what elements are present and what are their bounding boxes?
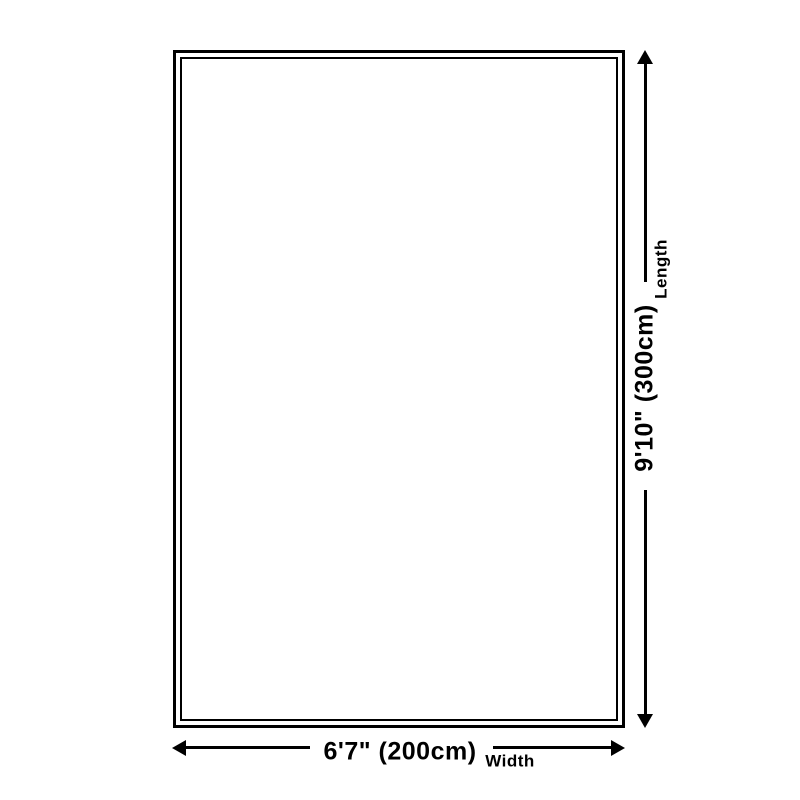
length-value: 9'10" (300cm)	[633, 304, 658, 471]
length-arrow-line-lower	[644, 490, 647, 716]
arrow-right-icon	[611, 740, 625, 756]
length-label: Length	[653, 239, 670, 299]
width-value: 6'7" (200cm)	[323, 740, 476, 765]
width-arrow-line-right	[493, 746, 612, 749]
arrow-down-icon	[637, 714, 653, 728]
length-arrow-line-upper	[644, 62, 647, 282]
width-arrow-line-left	[184, 746, 310, 749]
width-label: Width	[485, 753, 535, 770]
rug-inner-outline	[180, 57, 618, 721]
rug-outline-rectangle	[173, 50, 625, 728]
dimension-diagram: Length 9'10" (300cm) 6'7" (200cm) Width	[0, 0, 800, 800]
